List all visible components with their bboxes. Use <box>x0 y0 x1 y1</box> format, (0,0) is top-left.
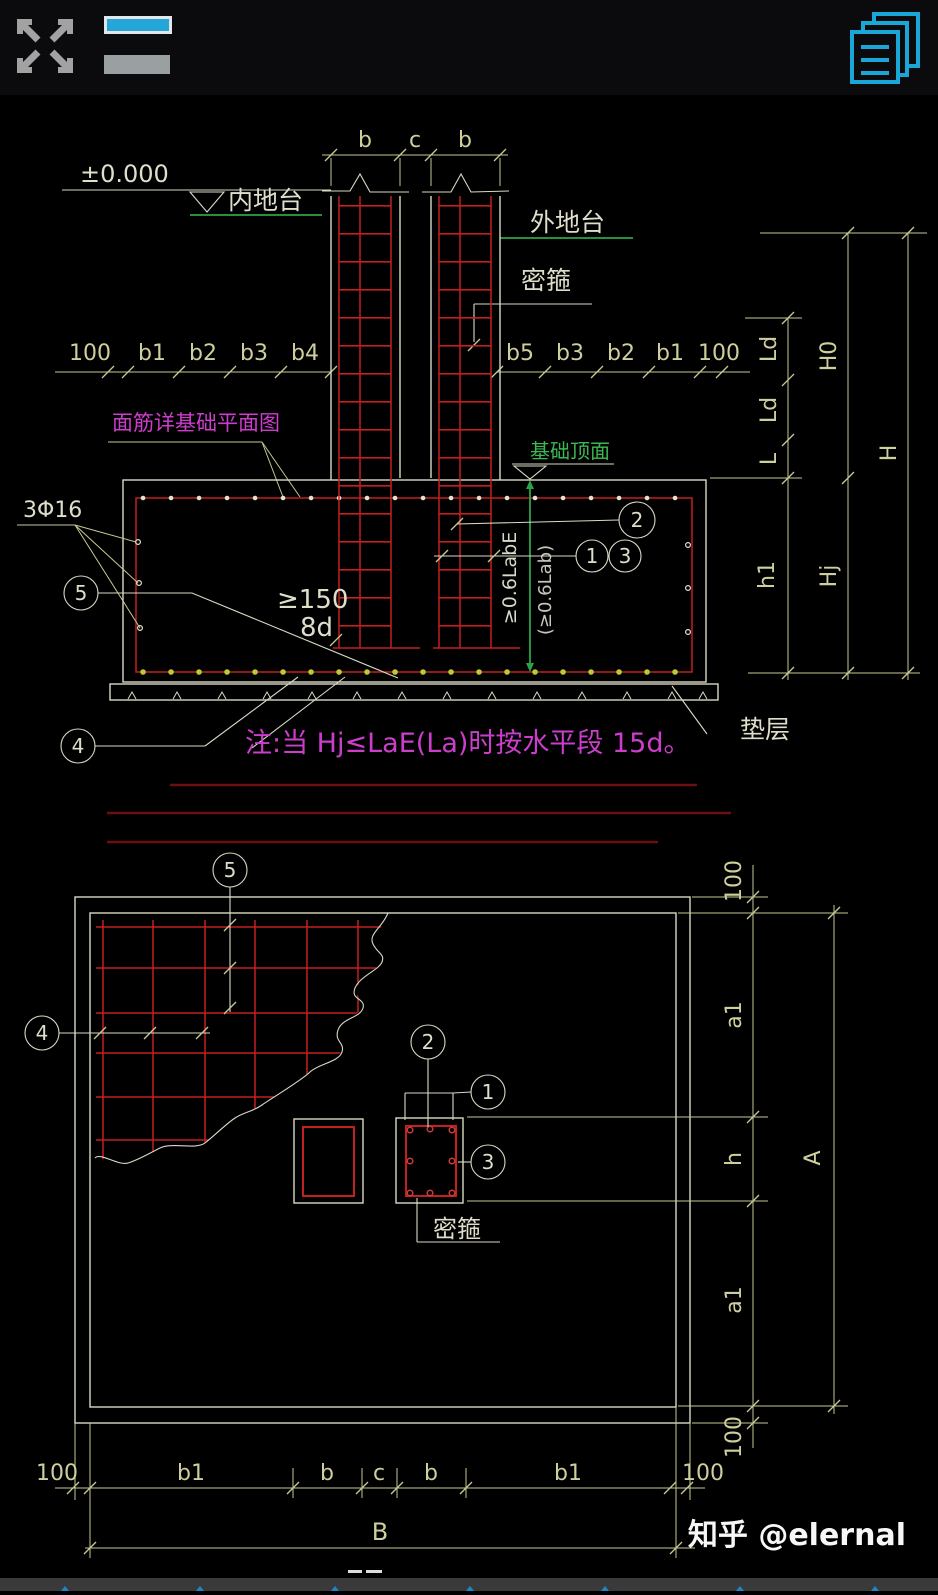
dim-100: 100 <box>722 1416 747 1458</box>
dim-h1: h1 <box>755 561 780 589</box>
stirrup-callout-section: 密箍 <box>468 266 592 351</box>
dim-label-b: b <box>458 128 472 153</box>
dim-100: 100 <box>36 1461 78 1486</box>
dim-ld: Ld <box>757 336 782 362</box>
foundation-detail-drawing: b c b ±0.000 内地台 外地台 密箍 <box>0 0 938 1591</box>
outer-ground: 外地台 <box>500 208 633 238</box>
dim-b4: b4 <box>291 341 319 366</box>
clipped-title-fragment <box>366 1570 382 1573</box>
break-wave-line <box>95 913 388 1163</box>
break-line-icon <box>422 174 509 192</box>
watermark: 知乎 @elernal <box>688 1510 906 1554</box>
foundation-section <box>110 480 718 700</box>
anchor-length-alt-label: (≥0.6Lab) <box>535 545 556 635</box>
stirrup-label: 密箍 <box>433 1215 481 1243</box>
section-left-dims: 100 b1 b2 b3 b4 <box>55 341 337 378</box>
section-view: b c b ±0.000 内地台 外地台 密箍 <box>17 128 927 842</box>
dim-b2: b2 <box>189 341 217 366</box>
callout-1: 1 <box>482 1080 495 1104</box>
break-line-icon <box>322 174 409 192</box>
top-rebar-note-label: 面筋详基础平面图 <box>112 411 280 435</box>
plan-bottom-dims: 100 b1 b c b b1 100 B <box>36 1407 724 1573</box>
callout-4: 4 <box>36 1021 49 1045</box>
dim-B: B <box>372 1518 388 1546</box>
bottom-tool-icon[interactable] <box>731 1586 749 1591</box>
dim-b2: b2 <box>607 341 635 366</box>
level-triangle-icon <box>190 192 224 212</box>
dim-b5: b5 <box>506 341 534 366</box>
anchorage-note: 注:当 Hj≤LaE(La)时按水平段 15d。 <box>245 728 691 759</box>
outer-ground-label: 外地台 <box>530 208 605 237</box>
anchor-length-label: ≥0.6LabE <box>499 532 521 624</box>
dim-b3: b3 <box>240 341 268 366</box>
fullscreen-button[interactable] <box>12 14 78 78</box>
bottom-tool-icon[interactable] <box>596 1586 614 1591</box>
dim-b3: b3 <box>556 341 584 366</box>
dim-ld: Ld <box>757 397 782 423</box>
layers-panel-button[interactable] <box>104 16 174 76</box>
dim-c: c <box>373 1461 385 1486</box>
dim-A: A <box>801 1150 826 1165</box>
dim-100: 100 <box>698 341 740 366</box>
plan-right-dims: 100 a1 h a1 100 A <box>467 860 848 1458</box>
bars-label: 3Φ16 <box>23 498 82 523</box>
dim-b1: b1 <box>138 341 166 366</box>
bottom-tool-icon[interactable] <box>191 1586 209 1591</box>
dim-a1: a1 <box>722 1001 747 1028</box>
layer-bar-active <box>104 16 172 34</box>
callout-5: 5 <box>75 581 88 605</box>
dim-100: 100 <box>682 1461 724 1486</box>
clipped-title-fragment <box>348 1570 362 1573</box>
dim-a1: a1 <box>722 1286 747 1313</box>
plan-rebar-grid <box>96 920 392 1166</box>
top-rebar-note: 面筋详基础平面图 <box>108 411 300 497</box>
stirrup-label: 密箍 <box>521 266 571 295</box>
inner-ground-label: 内地台 <box>228 186 303 215</box>
dim-b: b <box>320 1461 334 1486</box>
dim-100: 100 <box>69 341 111 366</box>
bottom-tool-icon[interactable] <box>866 1586 884 1591</box>
min-spacing-label: ≥150 <box>277 585 348 615</box>
bottom-tool-icon[interactable] <box>326 1586 344 1591</box>
dim-b1: b1 <box>554 1461 582 1486</box>
bottom-tool-icon[interactable] <box>56 1586 74 1591</box>
plan-columns <box>294 1118 463 1203</box>
foundation-top-label: 基础顶面 <box>530 439 610 463</box>
stacked-pages-icon <box>848 10 924 86</box>
top-toolbar <box>0 0 938 95</box>
cad-viewer-app: { "toolbar": { "fullscreen_icon": "expan… <box>0 0 938 1591</box>
dim-100: 100 <box>722 860 747 902</box>
callout-3: 3 <box>482 1150 495 1174</box>
dim-label-c: c <box>409 128 421 153</box>
dim-b1: b1 <box>177 1461 205 1486</box>
callout-4: 4 <box>72 734 85 758</box>
dim-hj: Hj <box>817 565 842 588</box>
dim-h0: H0 <box>817 341 842 372</box>
callout-1: 1 <box>586 544 599 568</box>
hook-length-label: 8d <box>300 613 333 643</box>
callout-2: 2 <box>422 1030 435 1054</box>
dim-b1: b1 <box>656 341 684 366</box>
plan-view: 5 4 2 1 3 <box>25 853 848 1573</box>
bars-3phi16: 3Φ16 <box>17 498 140 628</box>
bottom-toolbar <box>0 1578 938 1591</box>
section-top-dimension: b c b <box>322 128 508 186</box>
dim-h: H <box>877 445 902 462</box>
level-mark: ±0.000 内地台 <box>62 160 331 215</box>
dim-l: L <box>757 452 782 465</box>
hook-dims: ≥150 8d <box>277 585 348 646</box>
columns-section <box>322 174 520 648</box>
dim-b: b <box>424 1461 438 1486</box>
callout-5: 5 <box>224 858 237 882</box>
level-label: ±0.000 <box>80 160 169 188</box>
cushion-label: 垫层 <box>740 715 790 744</box>
drawings-list-button[interactable] <box>848 10 924 86</box>
section-right-dims: b5 b3 b2 b1 100 <box>491 341 750 378</box>
dim-h: h <box>722 1152 747 1166</box>
dim-label-b: b <box>358 128 372 153</box>
expand-arrows-icon <box>12 14 78 78</box>
cad-canvas[interactable]: b c b ±0.000 内地台 外地台 密箍 <box>0 0 938 1591</box>
section-vertical-dims: Ld Ld L h1 H0 Hj H <box>710 227 927 680</box>
bottom-tool-icon[interactable] <box>461 1586 479 1591</box>
callout-3: 3 <box>619 544 632 568</box>
layer-bar-inactive <box>104 55 170 74</box>
callout-2: 2 <box>631 508 644 532</box>
stirrup-callout-plan: 密箍 <box>417 1198 500 1243</box>
